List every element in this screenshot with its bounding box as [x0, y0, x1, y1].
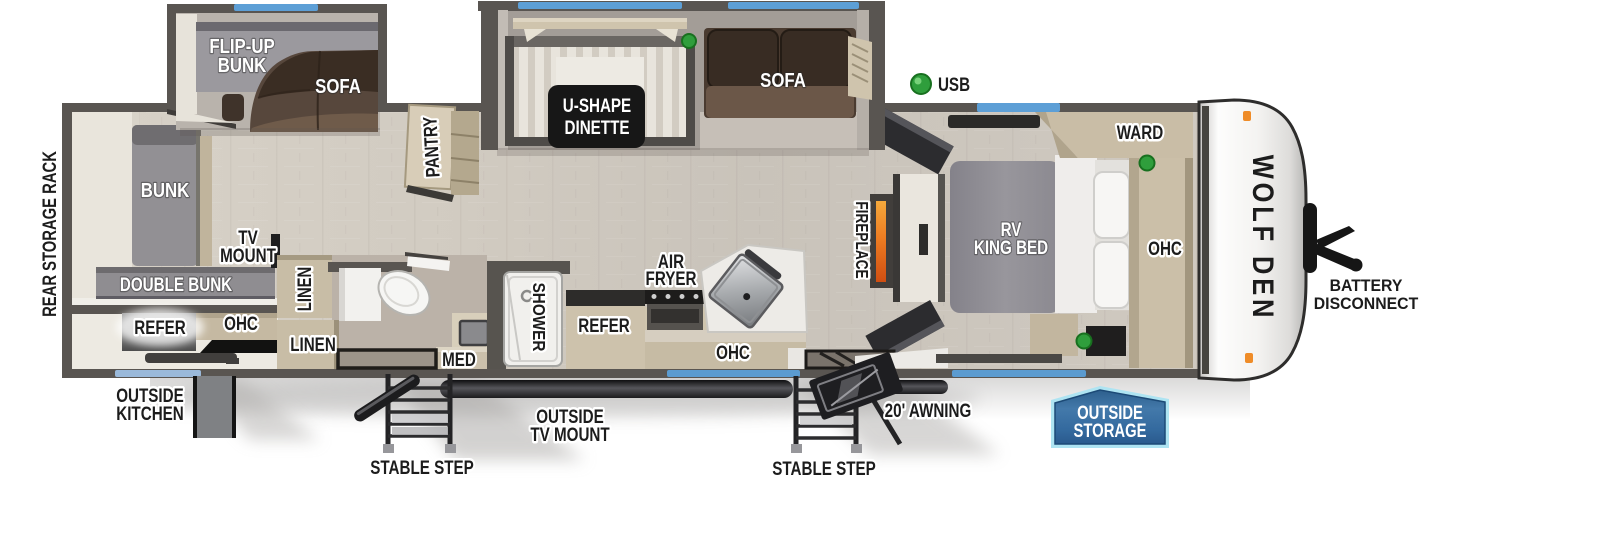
svg-text:KING BED: KING BED [974, 236, 1048, 258]
svg-text:TV MOUNT: TV MOUNT [530, 423, 610, 445]
svg-text:STABLE STEP: STABLE STEP [772, 457, 876, 479]
svg-text:BATTERY: BATTERY [1330, 277, 1403, 296]
svg-text:U-SHAPE: U-SHAPE [563, 94, 631, 116]
svg-text:STORAGE: STORAGE [1074, 420, 1147, 441]
svg-text:REFER: REFER [578, 314, 630, 336]
svg-text:REFER: REFER [134, 316, 186, 338]
svg-text:OHC: OHC [224, 312, 258, 334]
svg-text:FRYER: FRYER [646, 267, 697, 289]
svg-text:DISCONNECT: DISCONNECT [1314, 295, 1418, 314]
svg-text:USB: USB [938, 73, 970, 95]
svg-text:SOFA: SOFA [760, 68, 806, 91]
svg-text:STABLE STEP: STABLE STEP [370, 456, 474, 478]
svg-text:SHOWER: SHOWER [529, 283, 549, 352]
svg-text:DINETTE: DINETTE [564, 116, 629, 138]
svg-text:WOLF DEN: WOLF DEN [1247, 155, 1280, 322]
svg-text:BUNK: BUNK [218, 53, 267, 76]
svg-text:20' AWNING: 20' AWNING [885, 399, 972, 421]
svg-text:PANTRY: PANTRY [419, 116, 444, 178]
svg-text:REAR STORAGE RACK: REAR STORAGE RACK [39, 150, 60, 316]
svg-text:OHC: OHC [1148, 237, 1182, 259]
svg-text:BUNK: BUNK [141, 178, 190, 201]
svg-text:MOUNT: MOUNT [220, 244, 276, 266]
svg-text:KITCHEN: KITCHEN [116, 402, 184, 424]
svg-text:WARD: WARD [1117, 121, 1163, 143]
svg-text:LINEN: LINEN [294, 267, 315, 311]
svg-text:OHC: OHC [716, 341, 750, 363]
svg-text:DOUBLE BUNK: DOUBLE BUNK [120, 273, 233, 295]
svg-text:LINEN: LINEN [290, 333, 336, 355]
svg-text:SOFA: SOFA [315, 74, 361, 97]
svg-text:MED: MED [442, 348, 476, 370]
svg-text:FIREPLACE: FIREPLACE [852, 201, 871, 278]
